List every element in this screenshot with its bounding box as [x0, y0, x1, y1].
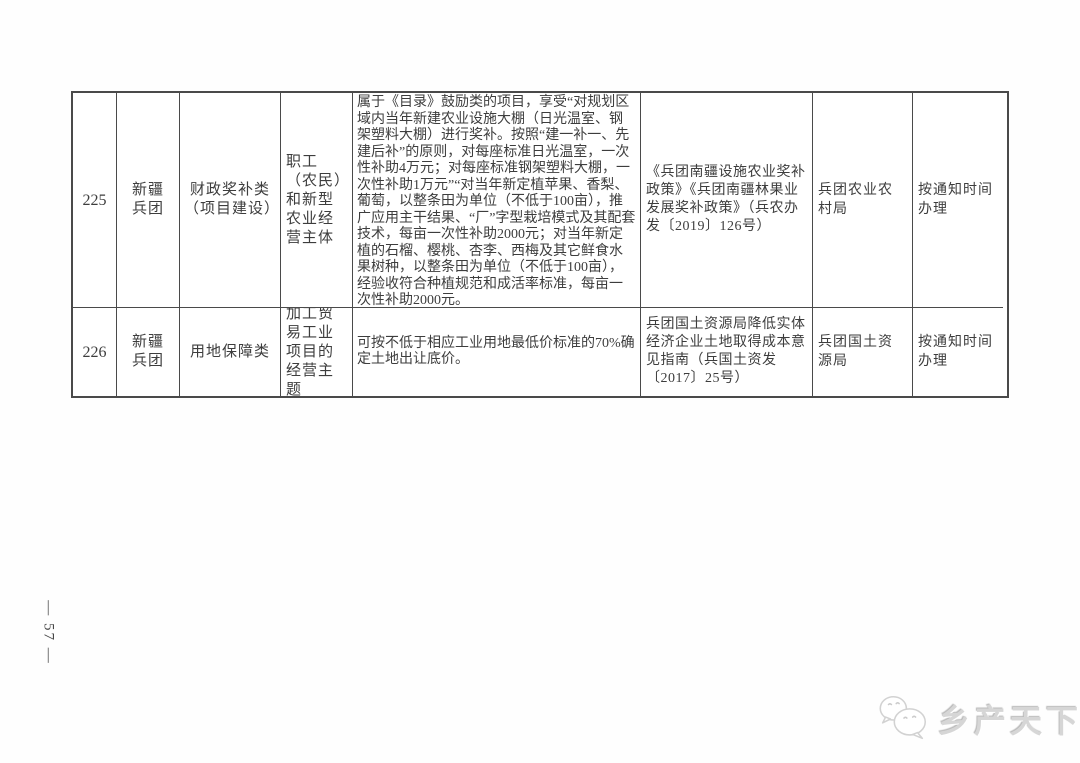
cell-region: 新疆兵团 — [117, 93, 180, 307]
cell-region: 新疆兵团 — [117, 307, 180, 396]
chat-bubbles-icon — [874, 690, 932, 748]
cell-handling-time: 按通知时间办理 — [913, 93, 1003, 307]
cell-row-number: 226 — [73, 307, 117, 396]
cell-applicant: 加工贸易工业项目的经营主题 — [281, 307, 353, 396]
policy-table: 225 新疆兵团 财政奖补类（项目建设） 职工（农民）和新型农业经营主体 属于《… — [71, 91, 1009, 398]
region-text: 新疆兵团 — [130, 333, 166, 371]
cell-applicant: 职工（农民）和新型农业经营主体 — [281, 93, 353, 307]
cell-category: 财政奖补类（项目建设） — [180, 93, 281, 307]
cell-row-number: 225 — [73, 93, 117, 307]
brand-name: 乡产天下 — [938, 696, 1080, 742]
cell-policy-content: 可按不低于相应工业用地最低价标准的70%确定土地出让底价。 — [353, 307, 641, 396]
cell-department: 兵团国土资源局 — [813, 307, 913, 396]
cell-category: 用地保障类 — [180, 307, 281, 396]
cell-policy-basis: 《兵团南疆设施农业奖补政策》《兵团南疆林果业发展奖补政策》（兵农办发〔2019〕… — [641, 93, 813, 307]
cell-policy-content: 属于《目录》鼓励类的项目，享受“对规划区域内当年新建农业设施大棚（日光温室、钢架… — [353, 93, 641, 307]
cell-handling-time: 按通知时间办理 — [913, 307, 1003, 396]
region-text: 新疆兵团 — [130, 181, 166, 219]
cell-policy-basis: 兵团国土资源局降低实体经济企业土地取得成本意见指南（兵国土资发〔2017〕25号… — [641, 307, 813, 396]
table-row: 225 新疆兵团 财政奖补类（项目建设） 职工（农民）和新型农业经营主体 属于《… — [73, 93, 1007, 307]
page-number: — 57 — — [40, 593, 57, 673]
cell-department: 兵团农业农村局 — [813, 93, 913, 307]
table-row: 226 新疆兵团 用地保障类 加工贸易工业项目的经营主题 可按不低于相应工业用地… — [73, 307, 1007, 396]
brand-watermark: 乡产天下 — [874, 690, 1080, 748]
